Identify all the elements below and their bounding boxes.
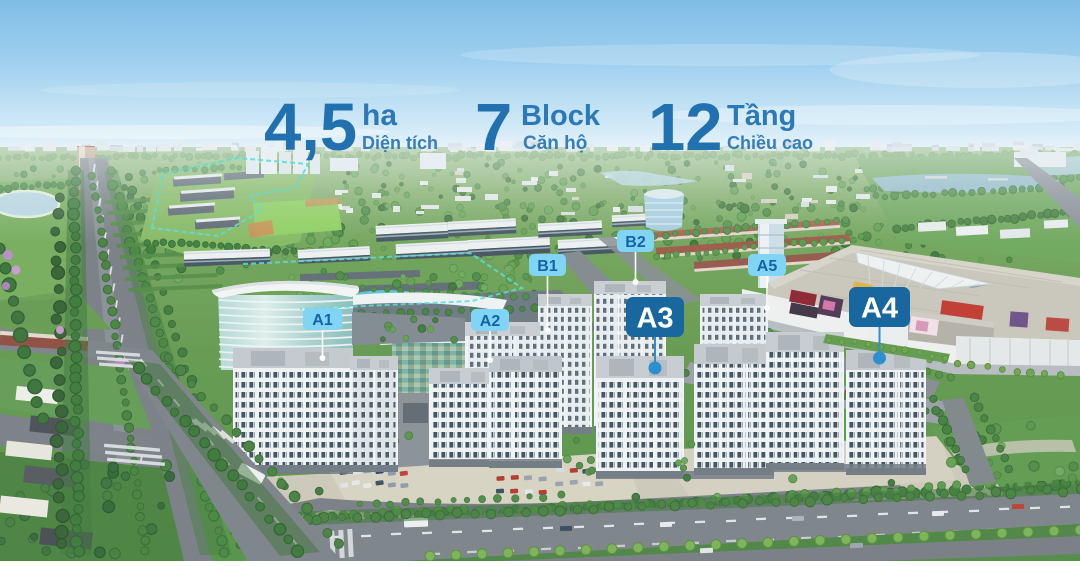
svg-text:A2: A2 xyxy=(480,313,501,330)
svg-text:A5: A5 xyxy=(757,258,778,275)
svg-text:A1: A1 xyxy=(312,312,333,329)
svg-text:7: 7 xyxy=(475,90,512,165)
svg-text:Chiều cao: Chiều cao xyxy=(727,133,813,153)
svg-text:A4: A4 xyxy=(861,292,898,324)
svg-text:A3: A3 xyxy=(636,302,673,334)
svg-text:Căn hộ: Căn hộ xyxy=(523,133,587,154)
svg-text:B2: B2 xyxy=(625,234,646,251)
svg-text:Diện tích: Diện tích xyxy=(362,133,438,153)
svg-text:Tầng: Tầng xyxy=(727,100,796,132)
svg-text:4,5: 4,5 xyxy=(264,90,357,165)
svg-text:12: 12 xyxy=(648,90,723,165)
svg-text:ha: ha xyxy=(362,99,397,132)
svg-text:B1: B1 xyxy=(537,258,558,275)
svg-text:Block: Block xyxy=(521,100,601,132)
